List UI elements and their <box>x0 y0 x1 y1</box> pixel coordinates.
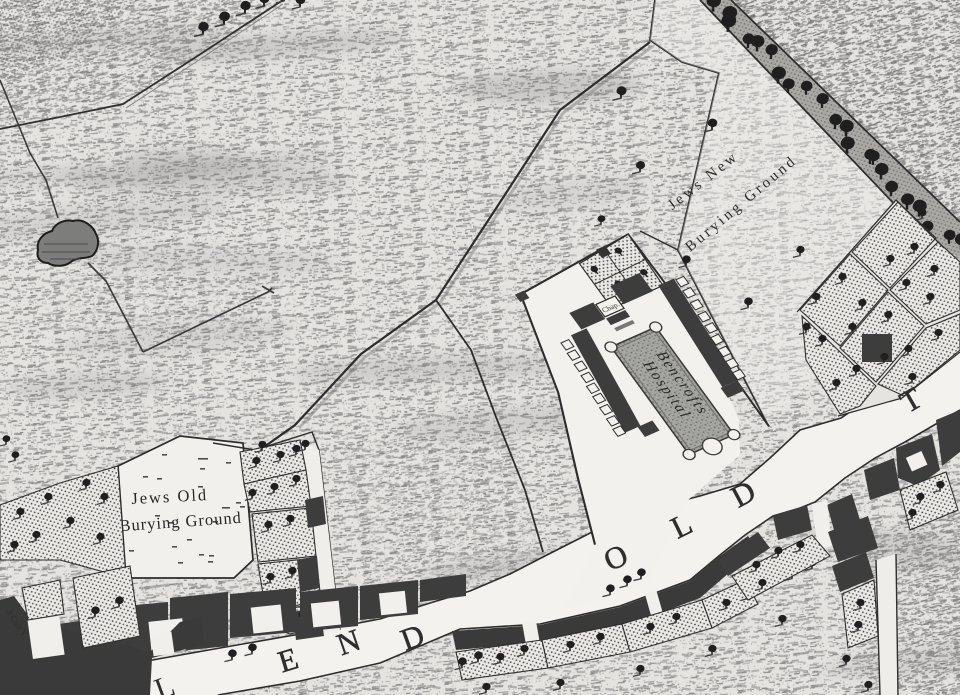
svg-text:Jews Old: Jews Old <box>131 485 209 508</box>
